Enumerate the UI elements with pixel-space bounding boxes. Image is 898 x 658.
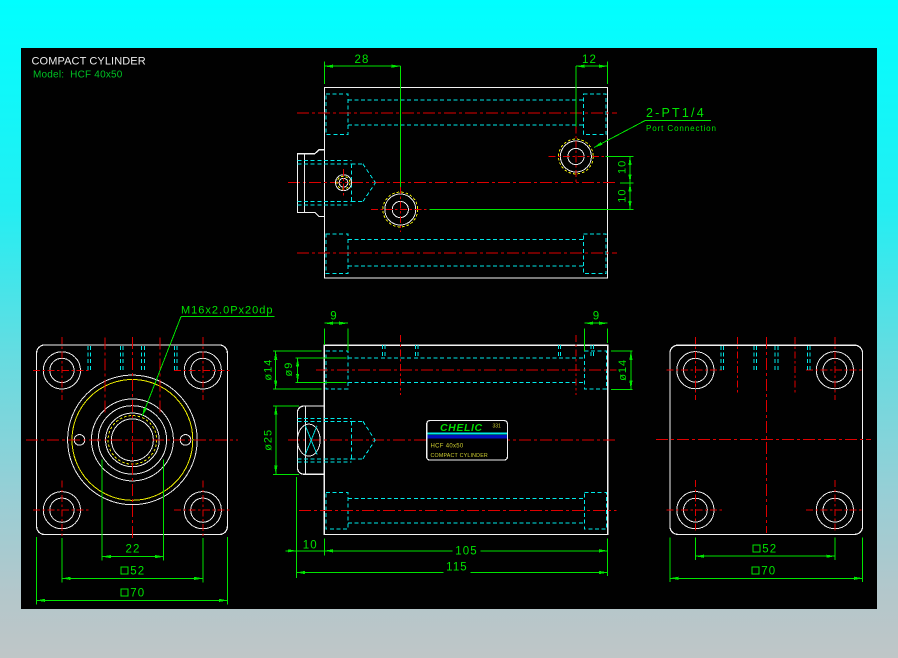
svg-text:M16x2.0Px20dp: M16x2.0Px20dp bbox=[181, 305, 274, 317]
svg-text:70: 70 bbox=[761, 565, 776, 577]
svg-text:115: 115 bbox=[446, 562, 468, 574]
svg-text:9: 9 bbox=[593, 311, 601, 323]
svg-text:331: 331 bbox=[493, 424, 502, 430]
svg-text:CHELIC: CHELIC bbox=[440, 422, 483, 434]
svg-text:10: 10 bbox=[303, 539, 318, 551]
svg-text:28: 28 bbox=[355, 54, 370, 66]
svg-text:22: 22 bbox=[126, 543, 141, 555]
svg-text:Port Connection: Port Connection bbox=[646, 124, 717, 133]
svg-text:105: 105 bbox=[455, 546, 478, 558]
svg-text:52: 52 bbox=[762, 543, 777, 555]
svg-text:70: 70 bbox=[130, 587, 145, 599]
svg-text:Model: HCF 40x50: Model: HCF 40x50 bbox=[33, 70, 123, 81]
svg-text:ø14: ø14 bbox=[617, 359, 629, 381]
svg-text:ø14: ø14 bbox=[263, 359, 275, 381]
svg-text:ø25: ø25 bbox=[262, 429, 274, 451]
svg-text:2-PT1/4: 2-PT1/4 bbox=[646, 106, 706, 120]
svg-text:10: 10 bbox=[616, 160, 628, 174]
svg-text:52: 52 bbox=[130, 565, 145, 577]
svg-text:HCF 40x50: HCF 40x50 bbox=[431, 443, 464, 449]
svg-text:12: 12 bbox=[582, 54, 597, 66]
svg-text:9: 9 bbox=[330, 311, 338, 323]
svg-text:ø9: ø9 bbox=[283, 362, 295, 377]
svg-text:COMPACT CYLINDER: COMPACT CYLINDER bbox=[32, 56, 146, 68]
svg-text:10: 10 bbox=[616, 188, 628, 202]
svg-text:COMPACT CYLINDER: COMPACT CYLINDER bbox=[431, 453, 488, 459]
